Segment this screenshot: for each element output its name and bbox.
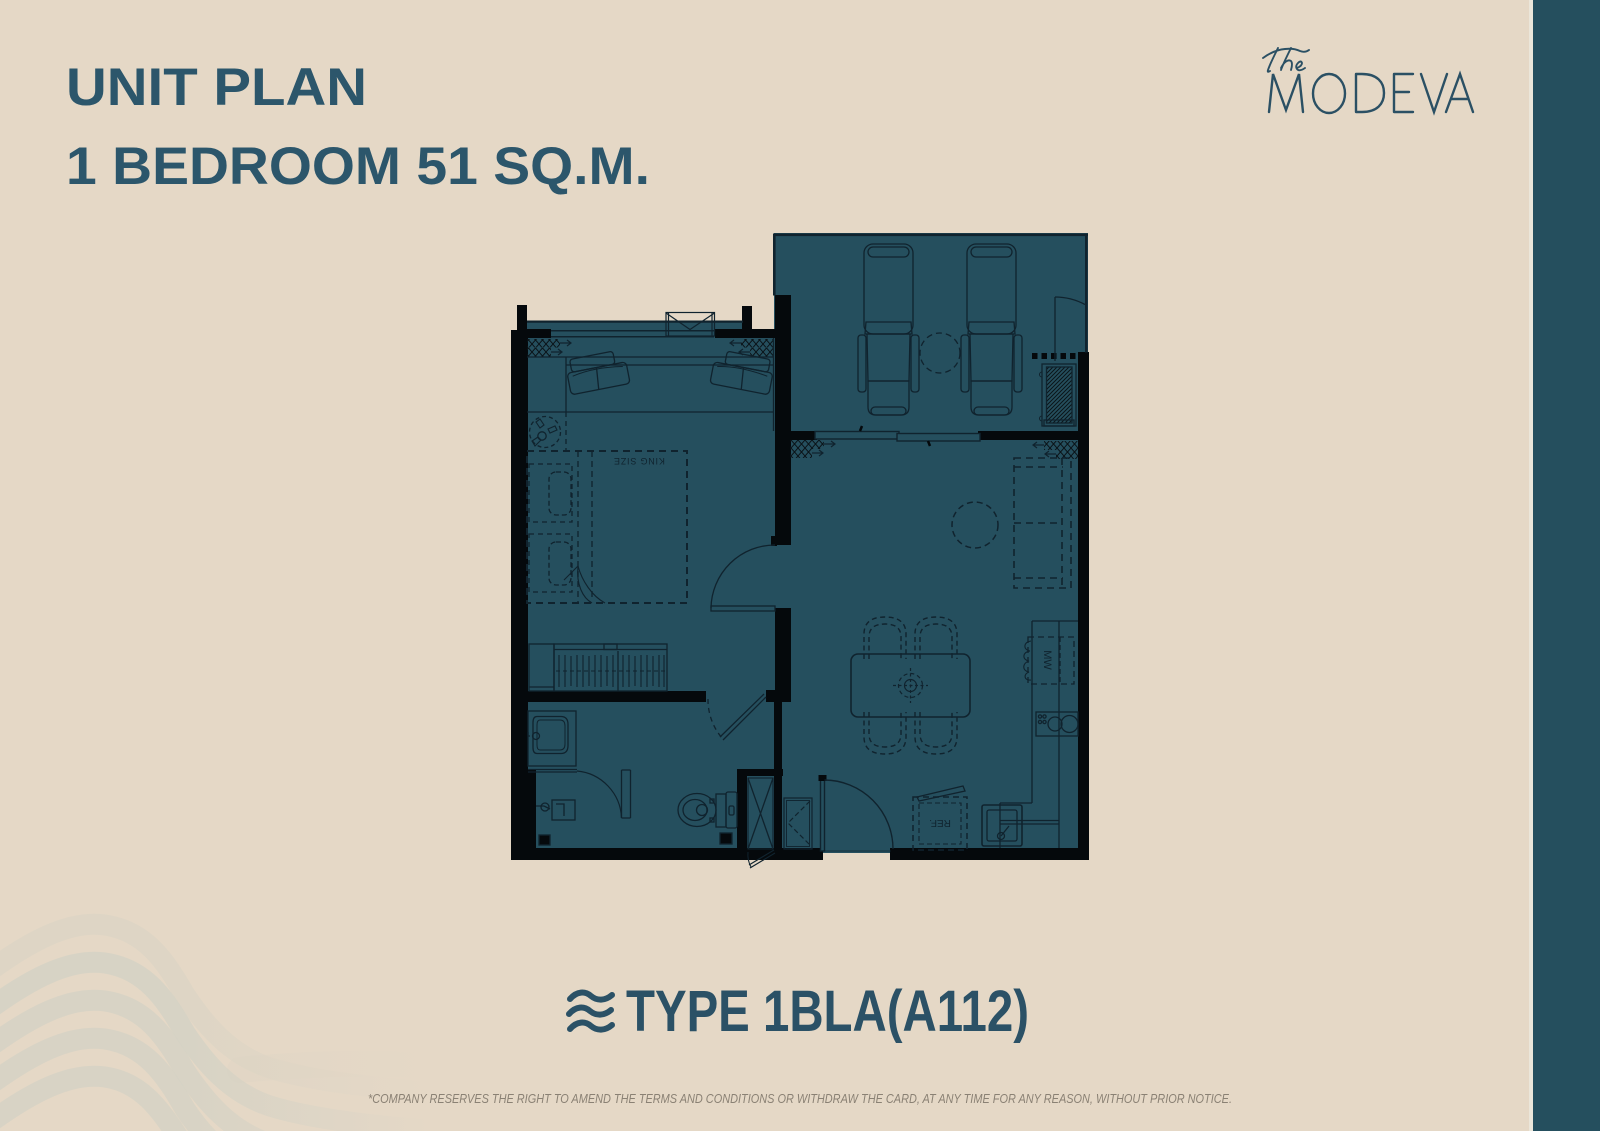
svg-text:1 BEDROOM 51 SQ.M.: 1 BEDROOM 51 SQ.M. [66, 137, 650, 196]
svg-text:REF.: REF. [929, 817, 951, 828]
svg-text:UNIT PLAN: UNIT PLAN [66, 58, 367, 117]
svg-text:KING SIZE: KING SIZE [613, 456, 665, 466]
svg-text:*COMPANY RESERVES THE RIGHT TO: *COMPANY RESERVES THE RIGHT TO AMEND THE… [368, 1092, 1232, 1106]
svg-text:MW: MW [1041, 650, 1053, 670]
svg-text:TYPE 1BLA(A112): TYPE 1BLA(A112) [626, 979, 1029, 1044]
